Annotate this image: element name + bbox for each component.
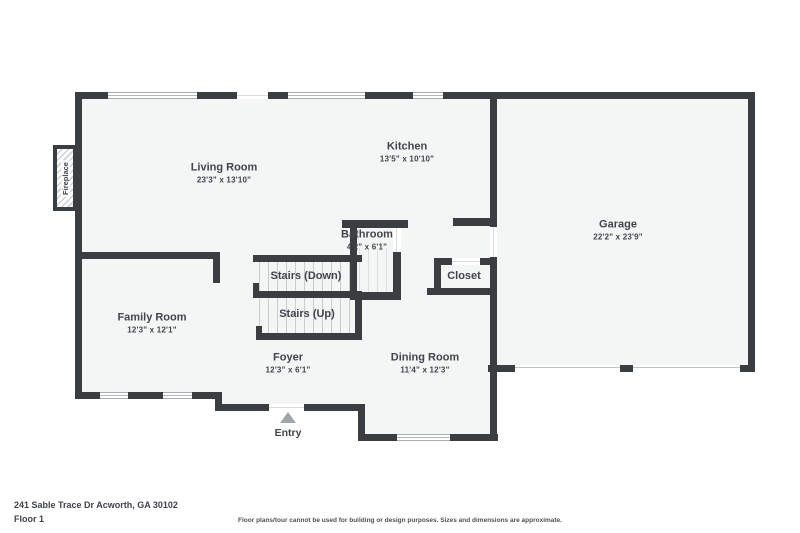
address-text: 241 Sable Trace Dr Acworth, GA 30102: [14, 500, 178, 510]
disclaimer-text: Floor plans/tour cannot be used for buil…: [238, 517, 562, 524]
room-label-foyer: Foyer 12'3" x 6'1": [266, 352, 311, 377]
entry-door-opening: [269, 404, 304, 411]
wall-exterior-right: [748, 92, 755, 372]
room-label-stairs-down: Stairs (Down): [271, 270, 342, 284]
wall-closet-bottom: [427, 288, 497, 295]
wall-family-bottom: [75, 392, 222, 399]
wall-bathroom-top: [342, 220, 408, 228]
wall-stairs-up-right: [355, 291, 362, 340]
room-label-closet: Closet: [447, 270, 481, 284]
floor-number-text: Floor 1: [14, 514, 44, 524]
wall-exterior-left: [75, 92, 82, 399]
wall-stairs-top: [253, 255, 362, 262]
bathroom-door-opening: [393, 228, 401, 252]
floor-area-foyer-strip: [215, 392, 365, 404]
floor-plan: Fireplace Living Room 23'3" x 13'10" Kit…: [0, 0, 800, 533]
room-label-family: Family Room 12'3" x 12'1": [117, 312, 186, 337]
closet-door-opening: [452, 258, 480, 265]
garage-door-center-post: [620, 365, 633, 372]
entry-label: Entry: [275, 427, 302, 439]
fireplace: Fireplace: [53, 145, 77, 211]
wall-kitchen-bottom: [453, 218, 497, 226]
window-kitchen-top-right: [413, 92, 443, 99]
garage-entry-door-opening: [490, 227, 497, 257]
room-label-garage: Garage 22'2" x 23'9": [593, 219, 643, 244]
wall-garage-left-upper: [490, 92, 497, 227]
bathroom-texture: [359, 248, 392, 292]
window-dining-bottom: [397, 434, 450, 441]
wall-stairs-left-stub-bottom: [256, 326, 262, 338]
wall-family-stub: [213, 252, 220, 283]
wall-closet-top-right: [480, 258, 492, 265]
wall-family-top: [75, 252, 220, 259]
room-label-stairs-up: Stairs (Up): [279, 308, 335, 322]
room-label-dining: Dining Room 11'4" x 12'3": [391, 352, 459, 377]
wall-entry-left: [215, 404, 269, 411]
fireplace-label: Fireplace: [61, 160, 70, 197]
room-label-living: Living Room 23'3" x 13'10": [191, 162, 258, 187]
floor-area-dining-lower: [358, 392, 490, 434]
wall-garage-left-lower: [490, 257, 497, 441]
window-living-top: [108, 92, 197, 99]
room-label-bathroom: Bathroom 4'2" x 6'1": [341, 229, 393, 254]
window-family-bottom-right: [163, 392, 192, 399]
window-kitchen-top-left: [288, 92, 365, 99]
wall-stairs-left-stub-mid: [253, 283, 259, 298]
wall-stairs-middle: [253, 291, 362, 298]
window-family-bottom-left: [100, 392, 128, 399]
wall-entry-right: [304, 404, 365, 411]
wall-bathroom-bottom: [356, 292, 401, 300]
room-label-kitchen: Kitchen 13'5" x 10'10": [380, 141, 434, 166]
wall-stairs-bottom: [256, 333, 362, 340]
entry-arrow-icon: [280, 412, 296, 423]
window-top-small: [237, 92, 268, 99]
